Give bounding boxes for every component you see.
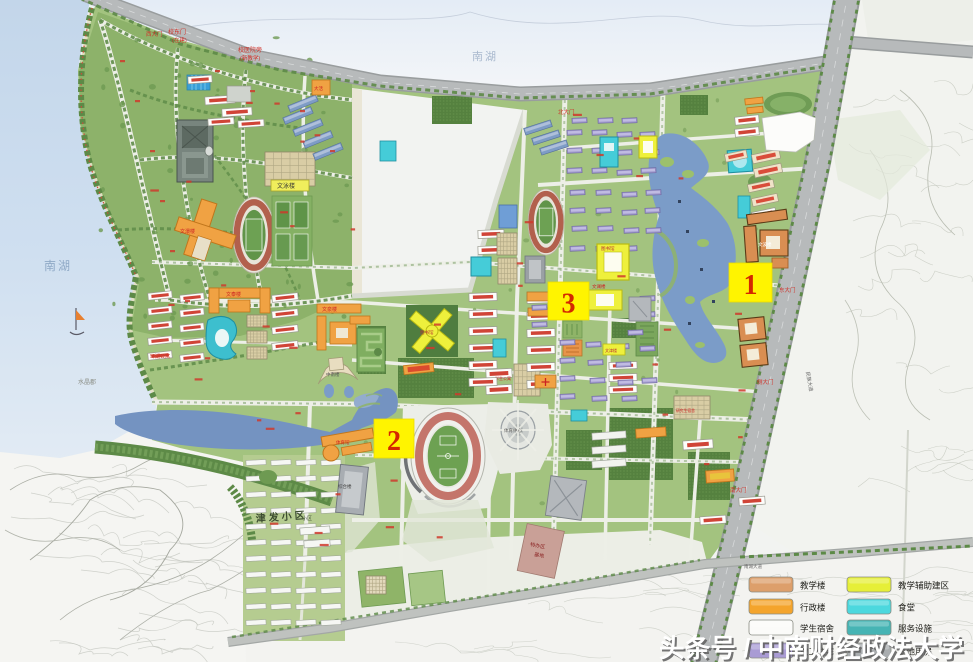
svg-text:东大门: 东大门 — [779, 286, 796, 294]
svg-text:体育馆: 体育馆 — [336, 439, 350, 446]
svg-text:体育中心: 体育中心 — [504, 427, 522, 434]
svg-text:南湖大道: 南湖大道 — [744, 563, 762, 570]
svg-text:服务设施: 服务设施 — [898, 624, 933, 634]
svg-text:南湖: 南湖 — [44, 258, 72, 273]
svg-text:(新教学): (新教学) — [240, 54, 260, 62]
svg-text:3: 3 — [562, 288, 576, 319]
svg-text:小区: 小区 — [302, 515, 312, 522]
svg-text:文波楼: 文波楼 — [758, 241, 772, 248]
svg-text:文泰楼: 文泰楼 — [226, 291, 241, 298]
svg-text:文澴楼: 文澴楼 — [180, 228, 195, 235]
svg-text:南湖: 南湖 — [472, 50, 498, 63]
svg-text:(在建): (在建) — [172, 36, 187, 44]
svg-text:水晶郡: 水晶郡 — [78, 378, 96, 386]
svg-text:大活: 大活 — [314, 85, 323, 92]
svg-text:综合楼: 综合楼 — [338, 483, 352, 490]
svg-text:食堂: 食堂 — [898, 603, 915, 613]
svg-text:侧大门: 侧大门 — [757, 378, 774, 386]
svg-text:北大门: 北大门 — [558, 108, 575, 116]
svg-text:环湖公寓: 环湖公寓 — [150, 353, 170, 360]
svg-text:中南楼: 中南楼 — [326, 371, 340, 378]
svg-text:校东门: 校东门 — [168, 28, 186, 36]
svg-text:文泳楼: 文泳楼 — [277, 182, 295, 190]
svg-text:西大门: 西大门 — [146, 30, 163, 38]
svg-text:头条号 / 中南财经政法大学: 头条号 / 中南财经政法大学 — [659, 634, 964, 662]
svg-text:校医院旁: 校医院旁 — [238, 46, 262, 54]
svg-text:行政楼: 行政楼 — [800, 603, 826, 613]
svg-text:文津楼: 文津楼 — [605, 347, 617, 353]
svg-text:教学辅助建区: 教学辅助建区 — [898, 581, 950, 591]
svg-text:2: 2 — [387, 426, 401, 457]
svg-text:1: 1 — [744, 270, 758, 301]
svg-text:学生公寓: 学生公寓 — [495, 375, 511, 381]
svg-text:研究生宿舍: 研究生宿舍 — [676, 408, 695, 413]
svg-text:文泉楼: 文泉楼 — [322, 306, 337, 313]
svg-text:文澜楼: 文澜楼 — [592, 283, 606, 290]
svg-text:图书馆: 图书馆 — [420, 329, 434, 336]
svg-text:南大门: 南大门 — [730, 486, 747, 494]
svg-text:图书馆: 图书馆 — [601, 245, 615, 252]
svg-text:教学楼: 教学楼 — [800, 581, 826, 591]
svg-text:学生宿舍: 学生宿舍 — [800, 624, 835, 634]
